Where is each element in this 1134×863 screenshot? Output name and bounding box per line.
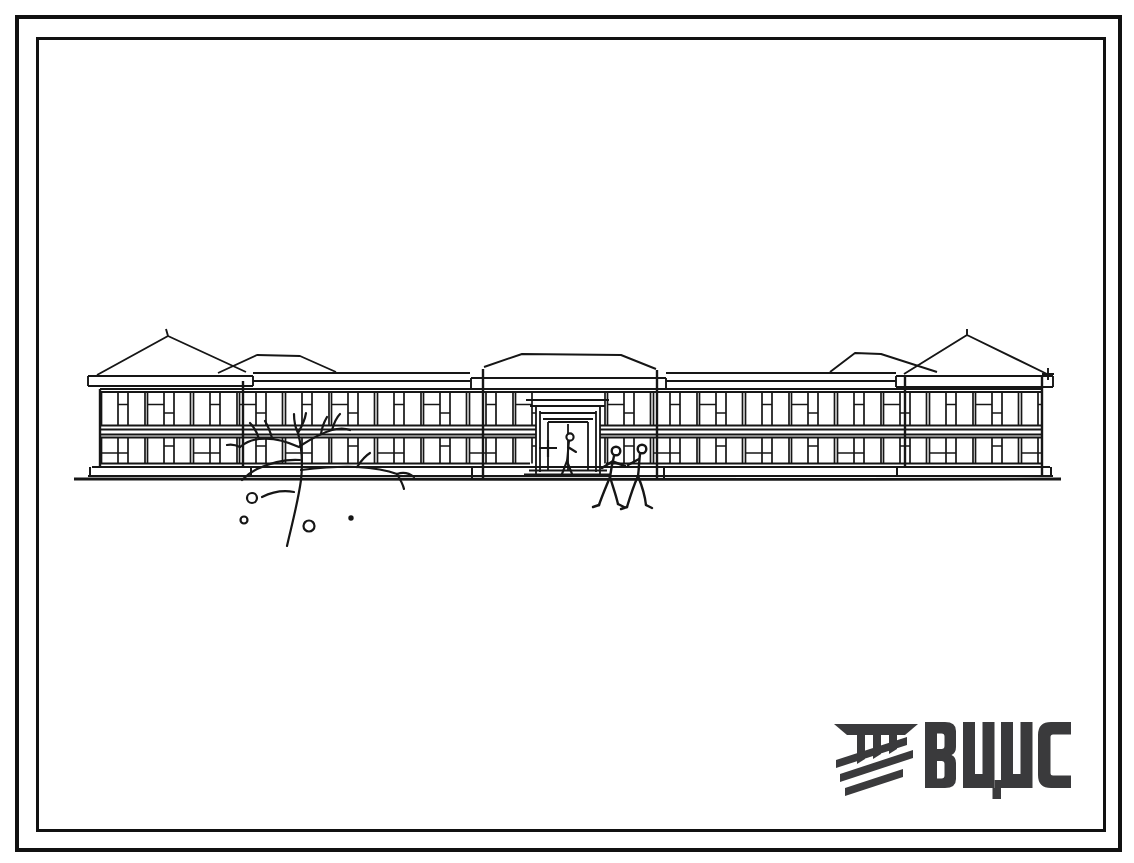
door-figure [562, 433, 576, 474]
scanned-sheet: { "document": { "background_color": "#ff… [0, 0, 1134, 863]
vcis-logo-icon [833, 718, 925, 798]
vcis-logo-text: ВЦИС [833, 716, 834, 717]
door-handle-cross [539, 440, 557, 457]
vcis-logo: ВЦИС [833, 716, 1078, 806]
roofs-and-cornices [88, 329, 1054, 389]
ground-line [74, 479, 1061, 480]
vcis-logo-wordmark [925, 720, 1075, 805]
